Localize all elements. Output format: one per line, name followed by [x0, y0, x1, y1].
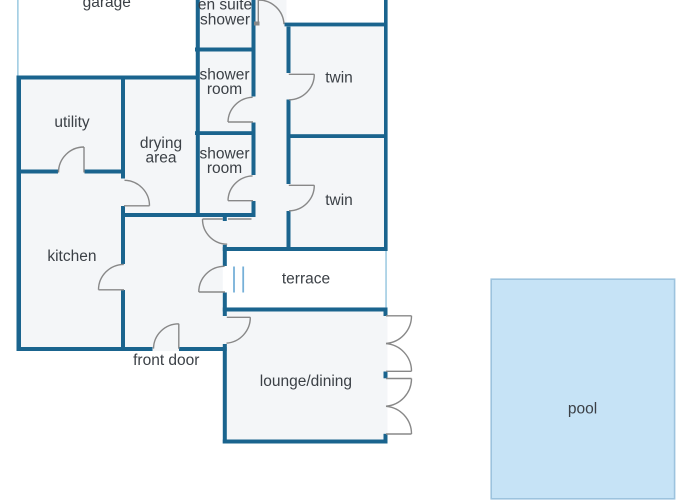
svg-text:twin: twin — [325, 192, 353, 209]
svg-text:area: area — [145, 150, 176, 167]
svg-text:garage: garage — [83, 0, 131, 11]
svg-text:terrace: terrace — [282, 270, 330, 287]
svg-text:room: room — [207, 81, 242, 98]
svg-text:lounge/dining: lounge/dining — [260, 373, 352, 390]
svg-text:utility: utility — [54, 114, 90, 131]
svg-text:room: room — [207, 160, 242, 177]
svg-text:kitchen: kitchen — [47, 248, 96, 265]
svg-text:pool: pool — [568, 401, 597, 418]
svg-text:twin: twin — [325, 70, 353, 87]
svg-text:shower: shower — [200, 12, 250, 29]
svg-text:front door: front door — [133, 352, 199, 369]
